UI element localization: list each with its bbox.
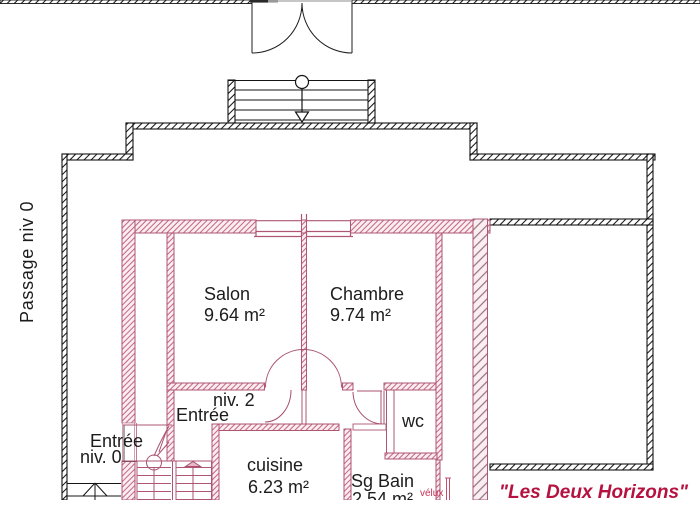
svg-text:9.64 m²: 9.64 m² bbox=[204, 305, 265, 325]
svg-text:6.23 m²: 6.23 m² bbox=[248, 477, 309, 497]
svg-text:wc: wc bbox=[401, 411, 424, 431]
svg-text:Entrée: Entrée bbox=[176, 405, 229, 425]
svg-text:cuisine: cuisine bbox=[247, 455, 303, 475]
svg-text:"Les Deux Horizons": "Les Deux Horizons" bbox=[499, 482, 689, 500]
svg-text:Sg Bain: Sg Bain bbox=[351, 471, 414, 491]
svg-text:9.74 m²: 9.74 m² bbox=[330, 305, 391, 325]
svg-text:niv. 0: niv. 0 bbox=[80, 447, 122, 467]
svg-text:Salon: Salon bbox=[204, 284, 250, 304]
svg-text:Passage niv 0: Passage niv 0 bbox=[17, 201, 37, 323]
svg-text:2.54 m²: 2.54 m² bbox=[352, 489, 413, 500]
svg-text:Chambre: Chambre bbox=[330, 284, 404, 304]
svg-text:vélux: vélux bbox=[420, 488, 443, 499]
